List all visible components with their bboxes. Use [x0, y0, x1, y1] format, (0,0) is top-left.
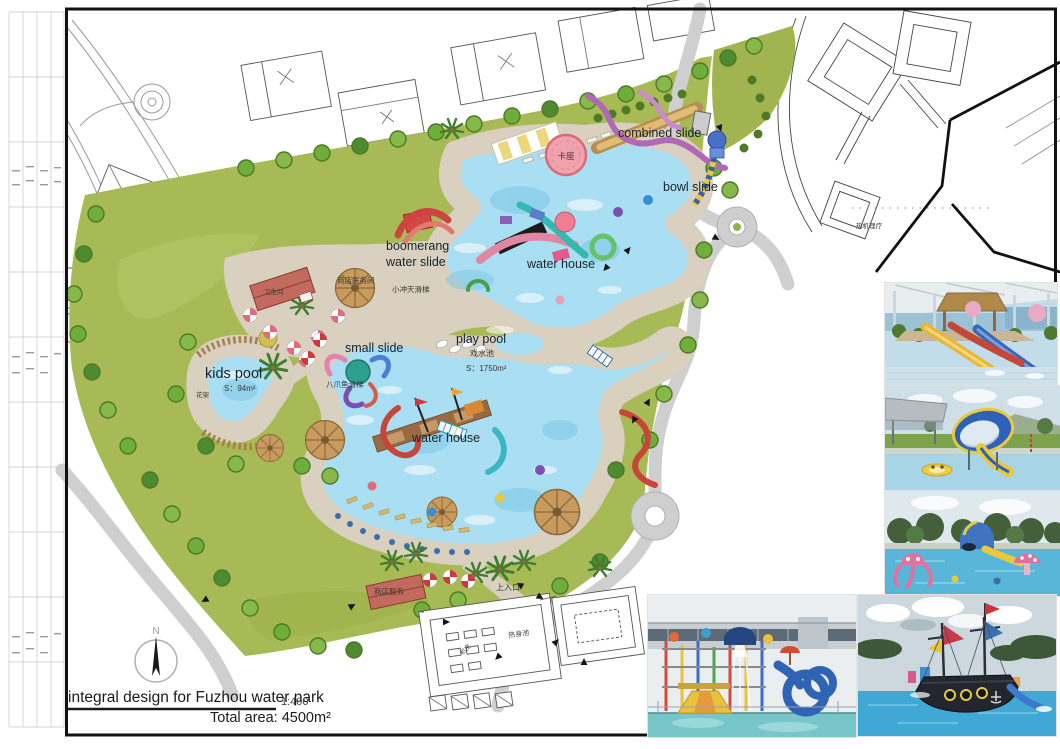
label-restroom: 卫生间 — [264, 287, 284, 296]
card-seating-area: 卡座 — [546, 135, 586, 175]
label-kids-pool-area: S：94m² — [224, 384, 256, 393]
label-small-sky-slide: 小冲天滑梯 — [392, 284, 430, 294]
label-bowl-slide: bowl slide — [663, 180, 718, 194]
label-pergola: 花架 — [196, 390, 210, 399]
cul-de-sac — [631, 492, 679, 540]
label-paddling-pool: 戏水池 — [470, 348, 494, 358]
label-kids-pool: kids pool — [205, 366, 262, 382]
photo-indoor-kids-slides — [885, 283, 1057, 385]
label-water-house-lower: water house — [411, 431, 480, 445]
label-small-slide: small slide — [345, 341, 403, 355]
label-upper-entrance: 上入口 — [496, 583, 520, 592]
waterpark-design-sheet: 热机理疗 — [0, 0, 1060, 749]
label-combined-slide: combined slide — [618, 126, 701, 140]
label-thermal-therapy: 热机理疗 — [856, 221, 883, 230]
label-water-house-upper: water house — [526, 257, 595, 271]
photo-pirate-ship — [858, 595, 1056, 736]
label-play-pool: play pool — [456, 332, 506, 346]
label-octopus-slide: 八爪鱼滑梯 — [326, 379, 364, 389]
label-play-pool-area: S：1750m² — [466, 364, 507, 373]
scale-label: 1:400 — [281, 696, 309, 708]
photo-water-playground — [648, 595, 856, 737]
label-shop-medical-room: 商店医务间 — [337, 275, 375, 285]
label-card-seating: 卡座 — [557, 151, 575, 161]
label-boomerang-slide-line1: boomerang — [386, 239, 449, 253]
total-area-label: Total area: 4500m² — [210, 710, 331, 726]
compass-north-label: N — [152, 626, 159, 637]
label-shop-service: 商店服务 — [374, 586, 404, 596]
roundabout — [717, 207, 757, 247]
label-boomerang-slide-line2: water slide — [385, 255, 446, 269]
photo-octopus-pool — [885, 491, 1060, 596]
photo-funnel-slide — [885, 386, 1060, 490]
